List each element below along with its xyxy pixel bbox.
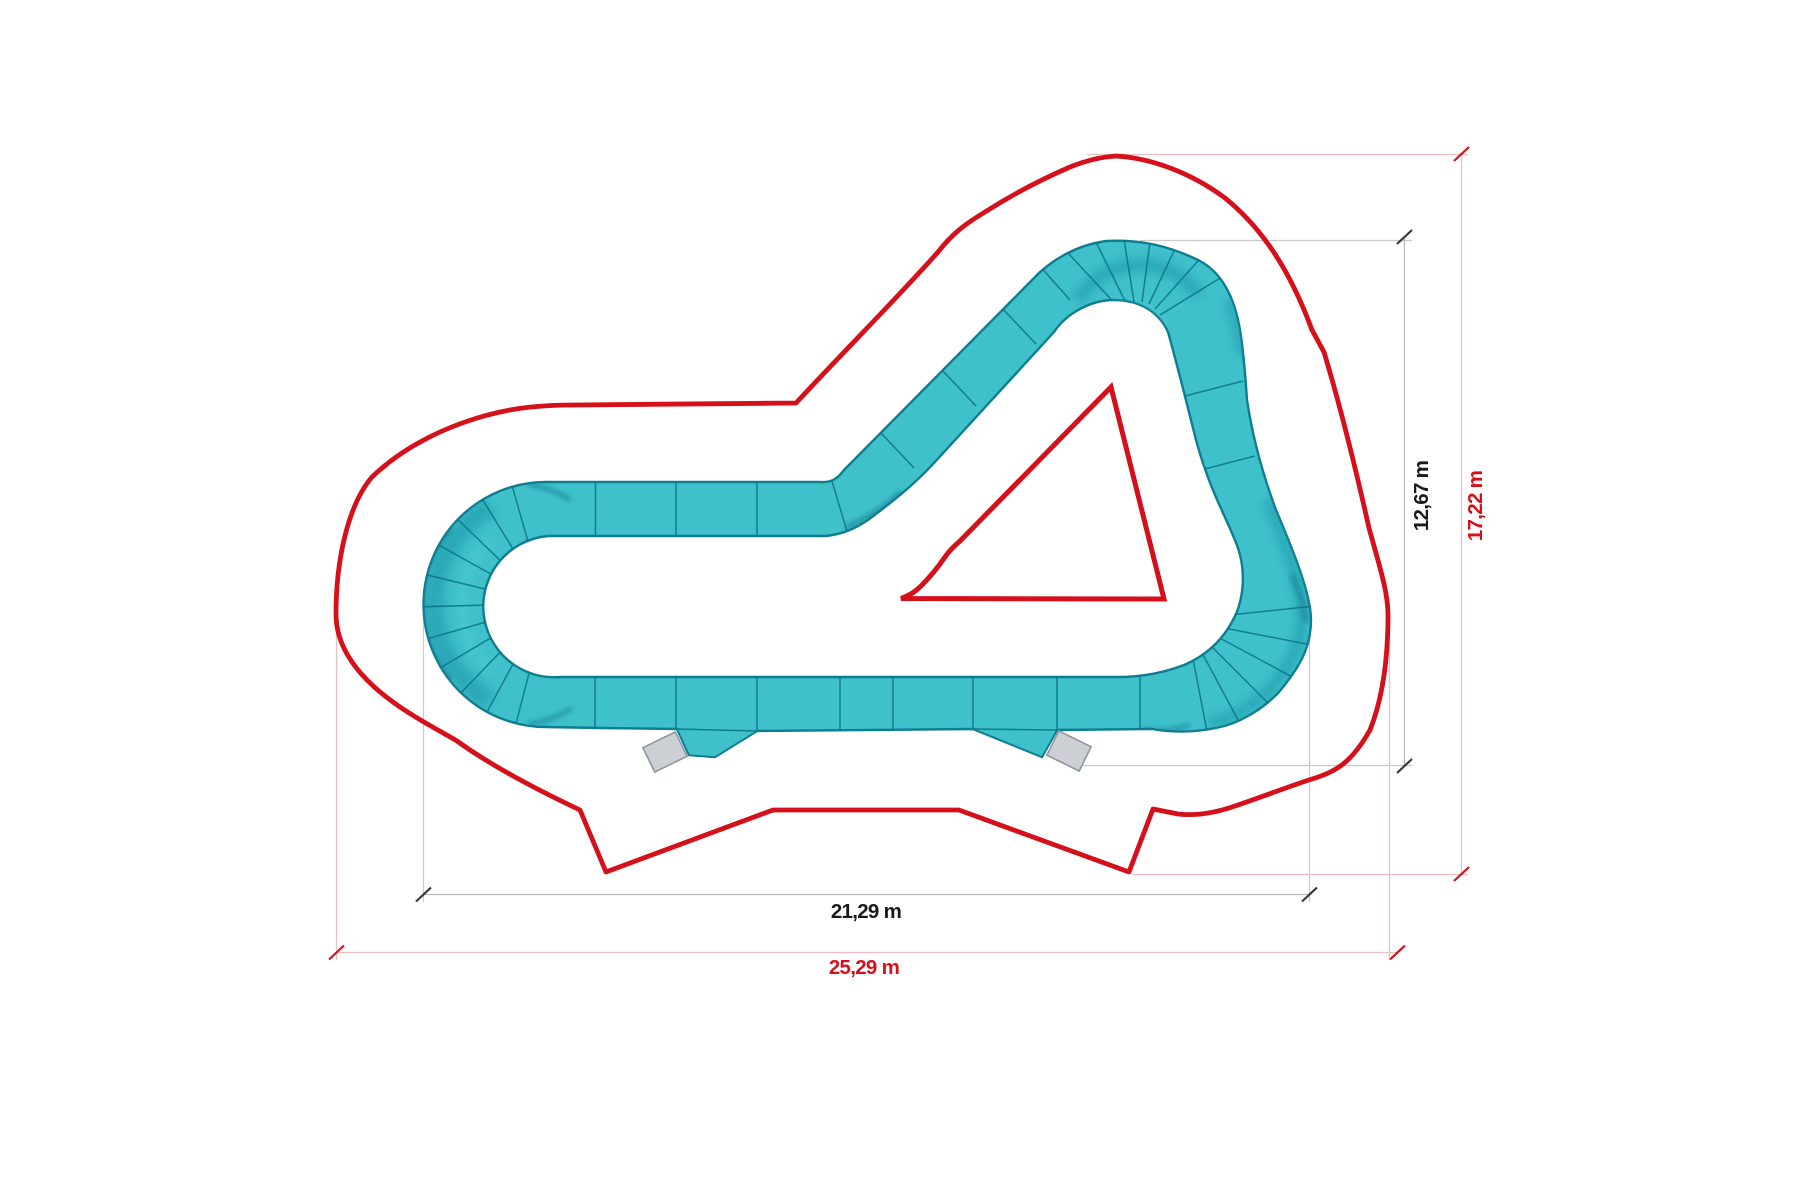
svg-text:21,29 m: 21,29 m: [831, 900, 901, 923]
svg-text:12,67 m: 12,67 m: [1410, 461, 1433, 531]
svg-text:17,22 m: 17,22 m: [1464, 471, 1487, 541]
svg-text:25,29 m: 25,29 m: [829, 956, 899, 979]
